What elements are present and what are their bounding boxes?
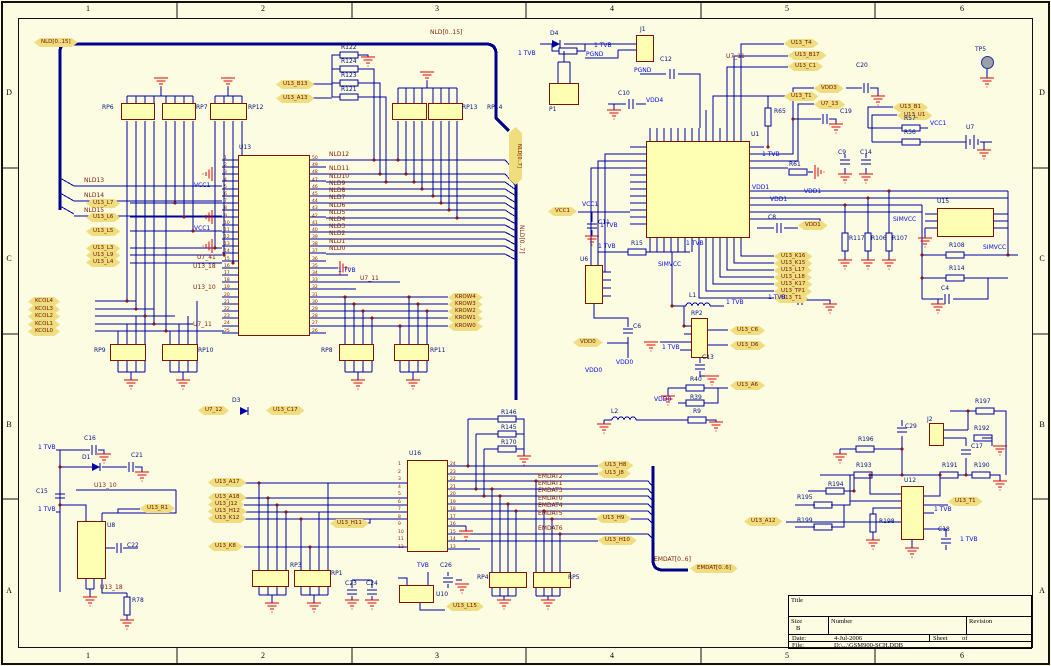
grid-ref: 3 [422,4,452,13]
grid-ref: 6 [947,651,977,660]
file-label: File: [792,643,804,650]
grid-ref: A [2,586,16,595]
file-value: D:\...\GSM900-SCH.DDB [834,643,903,650]
file-cell: File: D:\...\GSM900-SCH.DDB [788,641,1032,649]
grid-ref: 3 [422,651,452,660]
grid-ref: 1 [73,4,103,13]
grid-ref: 6 [947,4,977,13]
grid-ref: 2 [248,651,278,660]
grid-ref: C [2,254,16,263]
grid-ref: D [2,88,16,97]
grid-ref: 2 [248,4,278,13]
grid-ref: 5 [772,4,802,13]
border-ticks [0,0,1051,666]
size-cell: Size [788,616,829,635]
number-cell: Number [828,616,967,635]
grid-ref: B [1035,420,1049,429]
grid-ref: B [2,420,16,429]
grid-ref: A [1035,586,1049,595]
grid-ref: 1 [73,651,103,660]
grid-ref: 4 [597,651,627,660]
title-cell: Title [788,595,1032,617]
schematic-sheet: NLD[0..7] NLD[0..7] 12345678910111213141… [0,0,1051,666]
grid-ref: 5 [772,651,802,660]
grid-ref: D [1035,88,1049,97]
revision-cell: Revision [966,616,1032,635]
grid-ref: 4 [597,4,627,13]
grid-ref: C [1035,254,1049,263]
size-value: B [796,626,800,633]
